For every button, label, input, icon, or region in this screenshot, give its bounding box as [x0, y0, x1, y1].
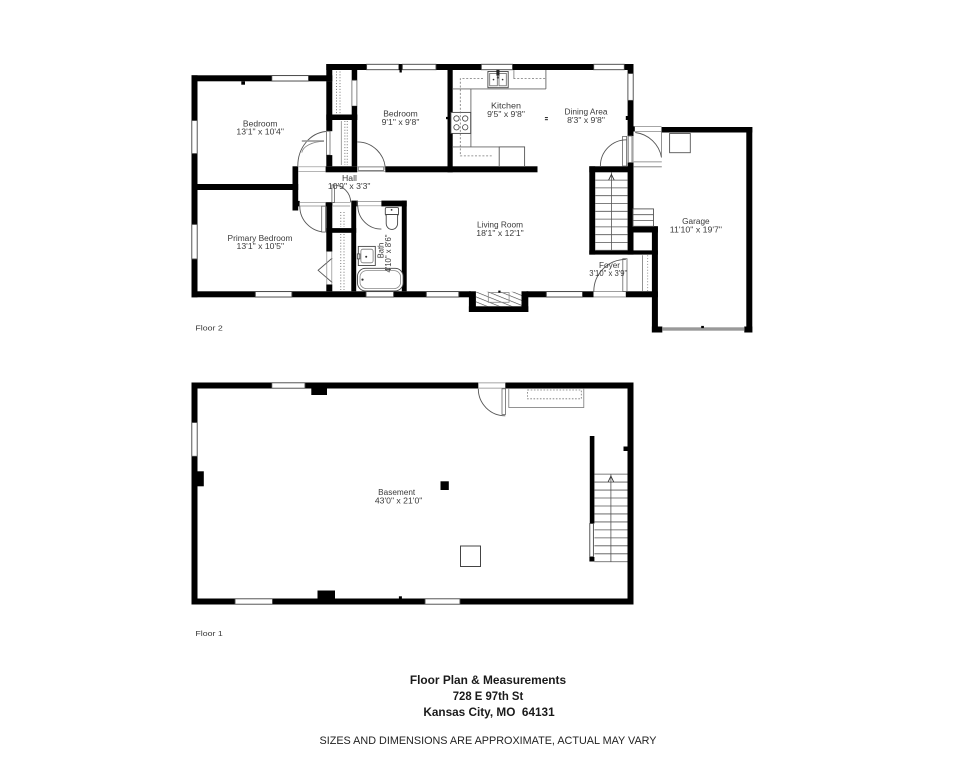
svg-text:3'10" x 3'9": 3'10" x 3'9" — [589, 269, 627, 278]
svg-text:Floor 1: Floor 1 — [195, 629, 222, 638]
svg-text:8'3" x 9'8": 8'3" x 9'8" — [567, 116, 605, 125]
svg-text:18'1" x 12'1": 18'1" x 12'1" — [476, 229, 524, 238]
svg-text:13'1" x 10'4": 13'1" x 10'4" — [236, 128, 284, 137]
svg-text:Kansas City, MO 64131: Kansas City, MO 64131 — [423, 705, 555, 719]
svg-text:Floor Plan & Measurements: Floor Plan & Measurements — [410, 673, 566, 687]
svg-text:4'10" x 8'6": 4'10" x 8'6" — [384, 234, 393, 272]
svg-text:9'1" x 9'8": 9'1" x 9'8" — [382, 118, 420, 127]
svg-text:10'9" x 3'3": 10'9" x 3'3" — [328, 182, 371, 191]
svg-text:11'10" x 19'7": 11'10" x 19'7" — [670, 225, 723, 234]
svg-text:43'0" x 21'0": 43'0" x 21'0" — [375, 497, 423, 506]
svg-text:728 E 97th St: 728 E 97th St — [453, 689, 524, 703]
svg-text:13'1" x 10'5": 13'1" x 10'5" — [237, 242, 285, 251]
svg-text:SIZES AND DIMENSIONS ARE APPRO: SIZES AND DIMENSIONS ARE APPROXIMATE, AC… — [320, 735, 657, 747]
svg-text:9'5" x 9'8": 9'5" x 9'8" — [487, 110, 525, 119]
svg-text:Floor 2: Floor 2 — [195, 323, 222, 332]
